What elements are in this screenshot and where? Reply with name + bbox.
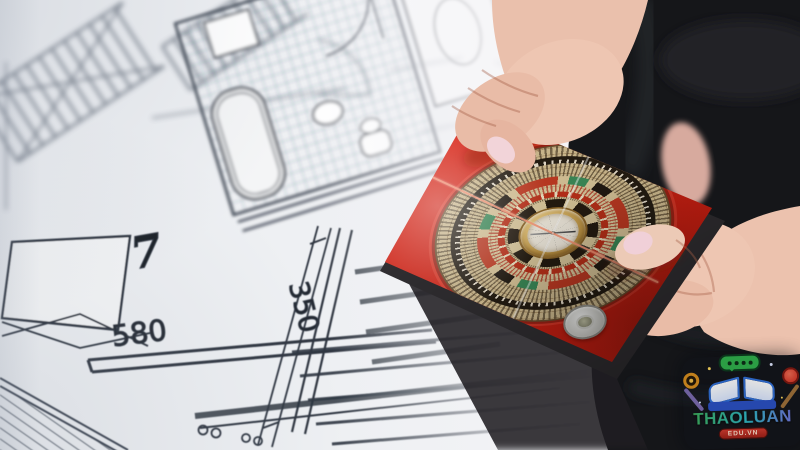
camera-emoji-icon [683,372,700,389]
crossed-stick-icon [683,388,704,412]
left-hand [440,0,648,183]
watermark-logo: THAOLUAN EDU.VN [681,354,800,450]
photo-scene: 7 580 350 [0,0,800,450]
sparkle-icon [781,397,783,399]
hands [0,0,800,450]
watermark-domain: EDU.VN [719,427,768,440]
open-book-icon [705,377,778,411]
right-thumb [603,216,700,283]
watermark-title: THAOLUAN [683,406,800,430]
sparkle-icon [699,401,701,403]
sparkle-icon [770,363,773,366]
speech-bubble-icon [718,353,761,371]
sparkle-icon [708,367,711,370]
red-emoji-icon [782,367,800,385]
